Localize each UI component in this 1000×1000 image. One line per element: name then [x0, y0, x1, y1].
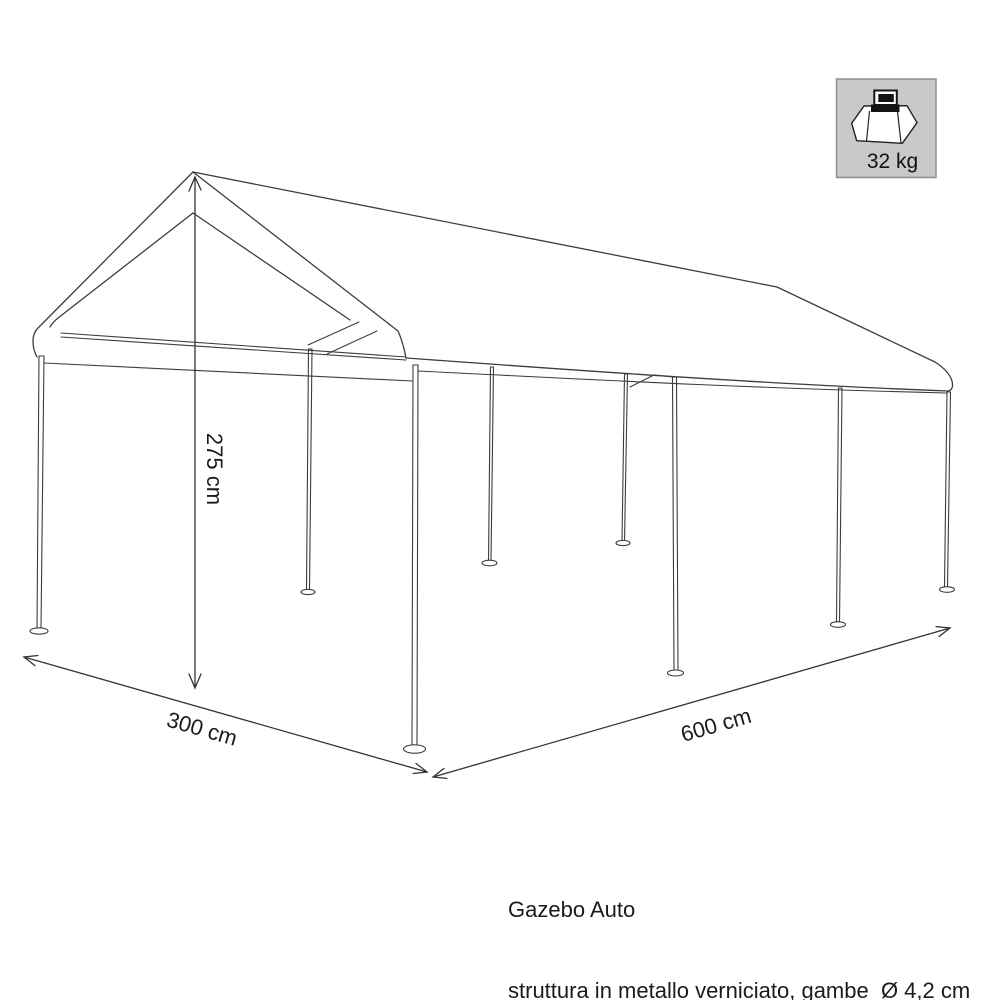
- weight-badge: 32 kg: [837, 79, 937, 178]
- canopy: [33, 172, 953, 391]
- mid-gusset: [630, 375, 673, 387]
- front-lower-rail: [44, 363, 412, 381]
- front-eave-beam-top: [61, 333, 406, 357]
- leg-foot: [404, 745, 426, 753]
- caption-line-product-name: Gazebo Auto: [508, 896, 970, 923]
- frame-beams: [44, 322, 946, 393]
- width-dimension-line: [24, 657, 427, 772]
- gazebo-leg-near-2: [673, 377, 679, 672]
- weight-value: 32 kg: [867, 150, 918, 173]
- weight-handle-inner: [878, 94, 894, 102]
- width-dimension-label: 300 cm: [164, 707, 240, 751]
- canopy-ridge-and-back: [193, 172, 953, 391]
- gazebo-leg-far-2: [307, 349, 313, 591]
- length-dimension-line: [433, 628, 950, 777]
- product-diagram-page: 275 cm 300 cm 600 cm 32 kg Gazebo Auto s…: [0, 0, 1000, 1000]
- canopy-gable-seam-left: [50, 213, 193, 327]
- caption-line-structure: struttura in metallo verniciato, gambe Ø…: [508, 977, 970, 1000]
- canopy-right-edge: [193, 172, 406, 358]
- dimension-width: [24, 656, 427, 774]
- leg-foot: [940, 587, 955, 593]
- gazebo-leg-front-left: [37, 356, 44, 629]
- dimension-height: [189, 177, 201, 688]
- leg-foot: [482, 560, 497, 566]
- leg-foot: [668, 670, 684, 676]
- canopy-gable-seam-right: [193, 213, 350, 320]
- gable-brace-a: [308, 322, 359, 345]
- caption: Gazebo Auto struttura in metallo vernici…: [508, 842, 970, 1000]
- dimension-labels: 275 cm 300 cm 600 cm: [164, 433, 754, 751]
- canopy-left-edge: [33, 172, 193, 357]
- gazebo-leg-near-3: [837, 388, 843, 623]
- gazebo-leg-back-right: [945, 392, 951, 588]
- dimensions: [24, 177, 950, 778]
- front-eave-beam-bottom: [61, 337, 406, 360]
- leg-foot: [30, 628, 48, 634]
- leg-foot: [301, 589, 315, 594]
- leg-foot: [616, 540, 630, 545]
- gable-brace-b: [327, 331, 377, 354]
- near-side-rail: [418, 371, 946, 393]
- leg-foot: [831, 622, 846, 628]
- gazebo-leg-far-4: [622, 374, 628, 542]
- gazebo-leg-front-right: [412, 365, 418, 746]
- gazebo-leg-far-3: [489, 367, 494, 562]
- legs: [37, 349, 951, 746]
- dimension-length: [433, 627, 950, 779]
- length-dimension-label: 600 cm: [678, 703, 754, 747]
- height-dimension-label: 275 cm: [202, 433, 227, 505]
